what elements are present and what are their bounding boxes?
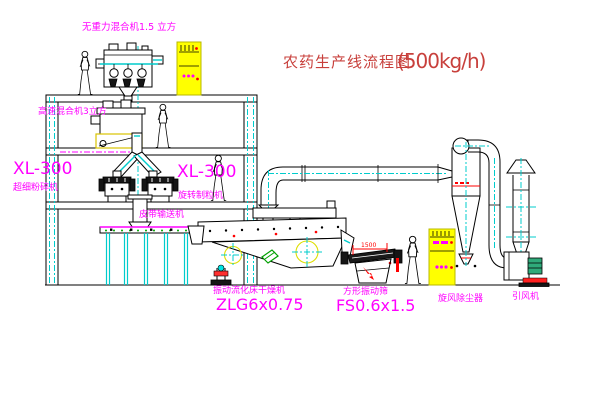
indicator-light xyxy=(195,47,198,50)
label-dryer-model: ZLG6x0.75 xyxy=(216,295,304,314)
person-figure xyxy=(405,236,421,283)
fan-motor xyxy=(528,258,542,274)
person-figure xyxy=(156,104,171,147)
person-figure xyxy=(78,51,93,94)
conveyor-legs xyxy=(107,233,188,285)
dryer-feed-hopper xyxy=(188,226,204,244)
indicator-light xyxy=(450,241,453,244)
label-granulator-model: XL-300 xyxy=(177,162,236,182)
dryer-support xyxy=(211,265,231,285)
label-belt-conveyor: 皮带输送机 xyxy=(139,208,184,220)
cyclone-separator xyxy=(452,138,480,267)
fluid-bed-dryer xyxy=(188,201,354,285)
flow-diagram: 1500 xyxy=(0,0,600,403)
indicator-light xyxy=(450,266,453,269)
control-cabinet-right xyxy=(429,229,455,285)
exhaust-duct xyxy=(259,164,452,214)
label-fan: 引风机 xyxy=(512,290,539,302)
label-pulverizer-model: XL-300 xyxy=(13,159,72,179)
label-high-speed-mixer: 高速混合机3立方 xyxy=(38,105,107,117)
diagram-canvas: 1500 xyxy=(0,0,600,403)
label-cyclone: 旋风除尘器 xyxy=(438,292,483,304)
vibration-arrow xyxy=(363,267,374,280)
zero-gravity-mixer xyxy=(96,43,163,101)
diagram-title-capacity: (500kg/h) xyxy=(397,49,486,73)
indicator-light xyxy=(196,78,199,81)
control-cabinet-top xyxy=(177,42,201,95)
sieve-dimension-text: 1500 xyxy=(361,242,376,249)
induced-draft-fan xyxy=(504,252,549,287)
label-zero-gravity-mixer: 无重力混合机1.5 立方 xyxy=(82,21,176,33)
diagram-title: 农药生产线流程图 xyxy=(283,53,411,71)
label-granulator-name: 旋转制粒机 xyxy=(178,189,223,201)
belt-conveyor xyxy=(100,227,200,285)
label-pulverizer-name: 超细粉碎机 xyxy=(13,181,58,193)
label-sieve-model: FS0.6x1.5 xyxy=(336,296,415,315)
